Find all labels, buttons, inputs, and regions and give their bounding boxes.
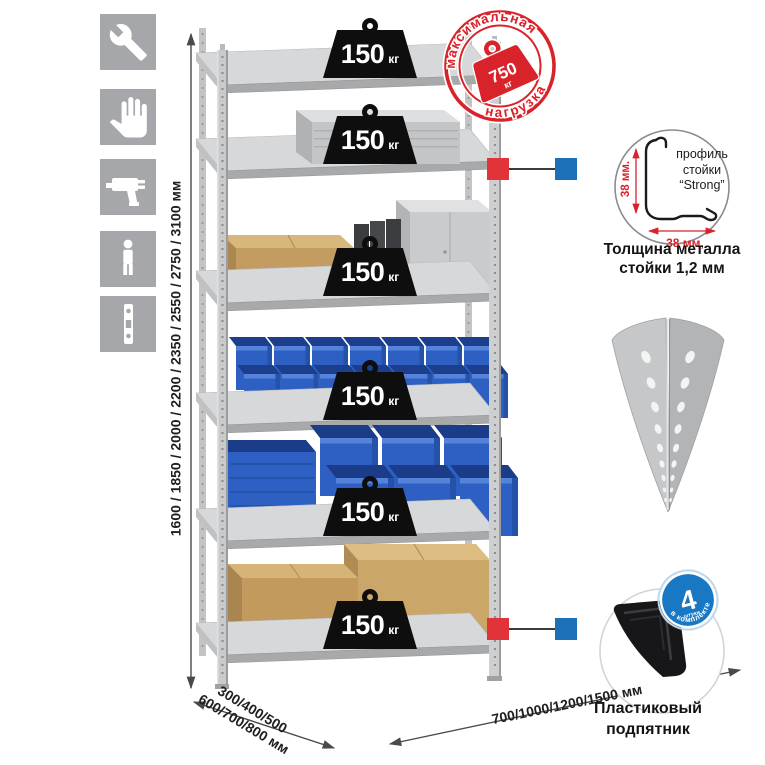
callout-blue-square: [555, 158, 577, 180]
gloves-icon: [100, 89, 156, 145]
profile-label-line2: стойки: [664, 163, 740, 179]
corner-profile-image: [612, 318, 724, 512]
wrench-icon: [100, 14, 156, 70]
callout-red-square: [487, 618, 509, 640]
drill-icon: [100, 159, 156, 215]
weight-unit: кг: [388, 138, 399, 152]
weight-value: 150: [341, 257, 385, 288]
profile-caption: Толщина металла стойки 1,2 мм: [592, 240, 752, 278]
weight-unit: кг: [388, 52, 399, 66]
profile-label-line1: профиль: [664, 147, 740, 163]
profile-dim-vertical: 38 мм.: [620, 149, 632, 209]
profile-caption-line2: стойки 1,2 мм: [592, 259, 752, 278]
weight-badge-shelf1: 150кг: [323, 18, 417, 78]
height-dimension-label: 1600 / 1850 / 2000 / 2200 / 2350 / 2550 …: [168, 149, 185, 569]
weight-unit: кг: [388, 623, 399, 637]
weight-value: 150: [341, 381, 385, 412]
callout-profile: [487, 158, 577, 180]
foot-caption-line1: Пластиковый: [573, 698, 723, 719]
callout-foot: [487, 618, 577, 640]
weight-badge-shelf3: 150кг: [323, 236, 417, 296]
weight-value: 150: [341, 610, 385, 641]
weight-unit: кг: [388, 394, 399, 408]
perforated-profile-icon: [100, 296, 156, 352]
callout-blue-square: [555, 618, 577, 640]
foot-caption-line2: подпятник: [573, 719, 723, 740]
weight-badge-shelf2: 150кг: [323, 104, 417, 164]
weight-unit: кг: [388, 270, 399, 284]
weight-value: 150: [341, 39, 385, 70]
profile-strong-label: профиль стойки “Strong”: [664, 147, 740, 194]
profile-caption-line1: Толщина металла: [592, 240, 752, 259]
profile-label-line3: “Strong”: [664, 178, 740, 194]
person-height-icon: [100, 231, 156, 287]
product-infographic: максимальная нагрузка 750 кг: [0, 0, 765, 765]
callout-red-square: [487, 158, 509, 180]
weight-value: 150: [341, 125, 385, 156]
weight-unit: кг: [388, 510, 399, 524]
weight-badge-shelf6: 150кг: [323, 589, 417, 649]
weight-badge-shelf4: 150кг: [323, 360, 417, 420]
weight-value: 150: [341, 497, 385, 528]
foot-caption: Пластиковый подпятник: [573, 698, 723, 740]
weight-badge-shelf5: 150кг: [323, 476, 417, 536]
